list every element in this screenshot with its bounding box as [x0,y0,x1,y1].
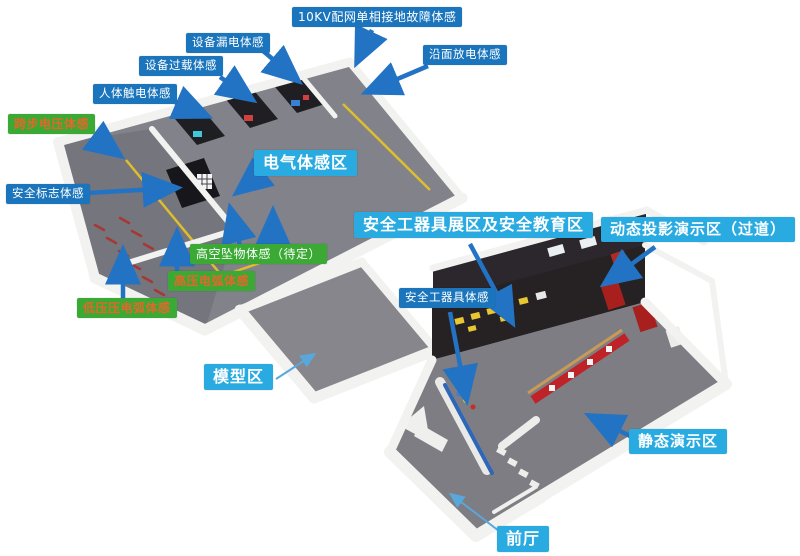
label-equip-leak: 设备漏电体感 [186,33,270,53]
label-safety-tools: 安全工器具体感 [399,288,495,308]
label-hv-arc: 高压电弧体感 [168,271,255,291]
booth-screen [244,115,253,121]
arrow-equip-leak [262,50,296,79]
booth-screen [303,95,309,100]
counter-item [471,405,476,410]
booth-screen [291,100,300,106]
label-falling-objects: 高空坠物体感（待定） [190,244,327,264]
lower-wing [390,210,726,536]
label-front-hall: 前厅 [497,526,549,552]
label-model-zone: 模型区 [204,364,273,390]
booth-screen [193,131,202,137]
label-10kv-fault: 10KV配网单相接地故障体感 [292,7,462,27]
label-electric-zone: 电气体感区 [254,150,357,176]
counter-item [457,392,462,397]
label-safety-sign: 安全标志体感 [6,184,90,204]
counter-item [463,397,469,403]
label-body-shock: 人体触电体感 [93,84,177,104]
label-equip-overload: 设备过载体感 [139,56,223,76]
label-step-voltage: 跨步电压体感 [8,114,95,134]
label-tool-exhibit-zone: 安全工器具展区及安全教育区 [354,212,593,238]
label-surface-discharge: 沿面放电体感 [423,45,507,65]
floorplan-page: 10KV配网单相接地故障体感 设备漏电体感 设备过载体感 人体触电体感 沿面放电… [0,0,800,556]
arrow-surface-discharge [369,66,428,91]
label-dynamic-projection-zone: 动态投影演示区（过道） [601,217,795,242]
arrow-10kv [358,30,372,60]
label-lv-arc: 低压压电弧体感 [77,298,177,318]
label-static-demo-zone: 静态演示区 [629,429,727,454]
